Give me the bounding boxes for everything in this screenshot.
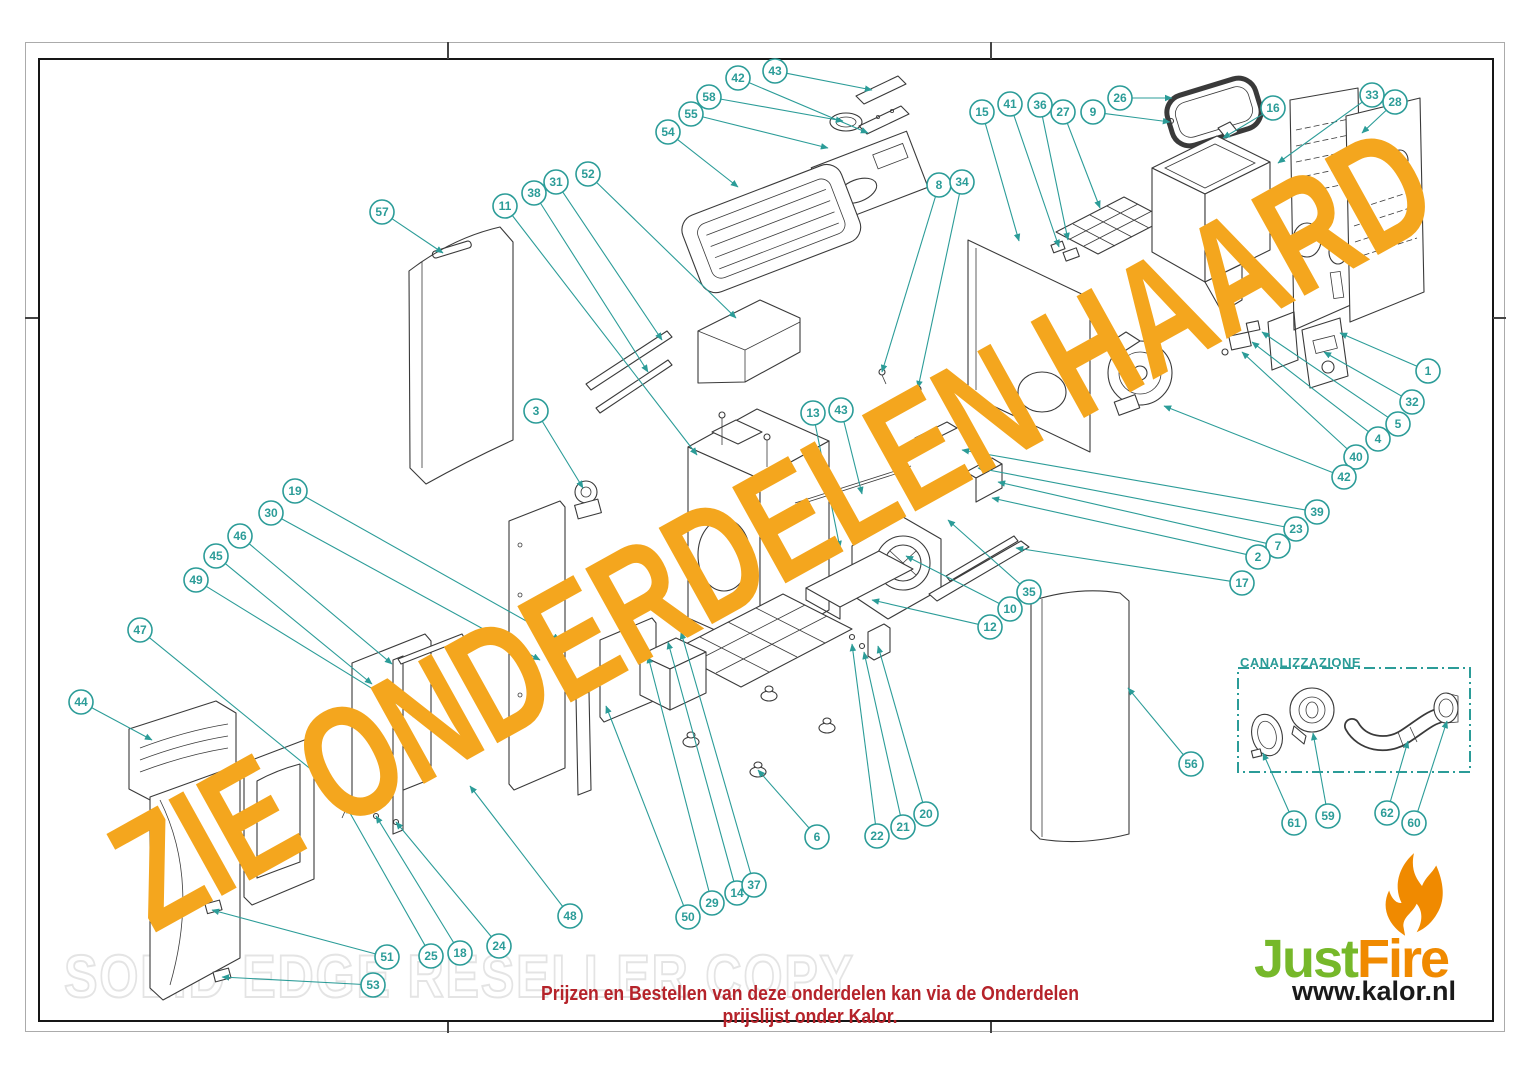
callout-22: 22: [852, 644, 889, 848]
svg-text:54: 54: [661, 125, 675, 139]
callout-58: 58: [697, 85, 843, 121]
svg-text:11: 11: [499, 199, 512, 213]
svg-text:48: 48: [563, 909, 577, 923]
callout-56: 56: [1128, 688, 1203, 776]
svg-text:49: 49: [189, 573, 203, 587]
svg-text:26: 26: [1113, 91, 1127, 105]
svg-text:25: 25: [424, 949, 438, 963]
callout-48: 48: [470, 786, 582, 928]
svg-text:51: 51: [380, 950, 394, 964]
svg-text:62: 62: [1380, 806, 1394, 820]
svg-text:20: 20: [919, 807, 933, 821]
duct-parts: [1247, 688, 1458, 759]
callout-59: 59: [1313, 733, 1340, 828]
callout-55: 55: [679, 102, 828, 148]
callout-41: 41: [998, 92, 1059, 247]
svg-text:28: 28: [1388, 95, 1402, 109]
svg-text:18: 18: [453, 946, 467, 960]
svg-text:36: 36: [1033, 98, 1047, 112]
svg-text:56: 56: [1184, 757, 1198, 771]
callout-6: 6: [758, 770, 829, 849]
svg-text:41: 41: [1003, 97, 1017, 111]
svg-text:9: 9: [1090, 105, 1097, 119]
svg-text:59: 59: [1321, 809, 1335, 823]
callout-62: 62: [1375, 741, 1408, 825]
svg-text:22: 22: [870, 829, 884, 843]
svg-text:4: 4: [1375, 432, 1382, 446]
svg-text:55: 55: [684, 107, 698, 121]
justfire-logo: JustFire www.kalor.nl: [1254, 848, 1484, 1008]
svg-text:2: 2: [1255, 550, 1262, 564]
svg-text:24: 24: [492, 939, 506, 953]
callout-11: 11: [493, 194, 697, 455]
svg-text:39: 39: [1310, 505, 1324, 519]
svg-text:40: 40: [1349, 450, 1363, 464]
exploded-parts-page: SOLID EDGE RESELLER COPY: [0, 0, 1531, 1085]
svg-text:38: 38: [527, 186, 541, 200]
svg-text:61: 61: [1287, 816, 1301, 830]
svg-text:32: 32: [1405, 395, 1419, 409]
flame-icon: [1366, 848, 1446, 940]
svg-text:3: 3: [533, 404, 540, 418]
callout-61: 61: [1263, 753, 1306, 835]
callout-20: 20: [878, 646, 938, 826]
svg-text:29: 29: [705, 896, 719, 910]
svg-text:46: 46: [233, 529, 247, 543]
svg-text:53: 53: [366, 978, 380, 992]
callout-35: 35: [948, 520, 1041, 604]
callout-15: 15: [970, 100, 1019, 241]
svg-text:52: 52: [581, 167, 595, 181]
callout-24: 24: [396, 822, 511, 958]
svg-text:23: 23: [1289, 522, 1303, 536]
svg-text:31: 31: [549, 175, 563, 189]
callout-17: 17: [1016, 548, 1254, 595]
svg-text:8: 8: [936, 178, 943, 192]
svg-text:10: 10: [1003, 602, 1017, 616]
footer-note: Prijzen en Bestellen van deze onderdelen…: [520, 983, 1101, 1029]
svg-text:21: 21: [896, 820, 910, 834]
svg-text:30: 30: [264, 506, 278, 520]
svg-text:16: 16: [1266, 101, 1280, 115]
svg-text:6: 6: [814, 830, 821, 844]
svg-text:5: 5: [1395, 417, 1402, 431]
svg-text:60: 60: [1407, 816, 1421, 830]
svg-text:43: 43: [768, 64, 782, 78]
callout-54: 54: [656, 120, 738, 187]
svg-text:42: 42: [731, 71, 745, 85]
callout-53: 53: [222, 973, 385, 997]
callout-40: 40: [1242, 352, 1368, 469]
callout-2: 2: [992, 498, 1270, 569]
callout-21: 21: [864, 652, 915, 839]
callout-42: 42: [726, 66, 868, 133]
svg-text:1: 1: [1425, 364, 1432, 378]
callout-3: 3: [524, 399, 583, 488]
svg-text:58: 58: [702, 90, 716, 104]
callout-26: 26: [1108, 86, 1172, 110]
callout-46: 46: [228, 524, 392, 664]
svg-text:44: 44: [74, 695, 88, 709]
svg-text:17: 17: [1235, 576, 1249, 590]
svg-text:7: 7: [1275, 539, 1282, 553]
callout-31: 31: [544, 170, 662, 340]
svg-text:35: 35: [1022, 585, 1036, 599]
callout-43: 43: [763, 59, 872, 90]
svg-text:37: 37: [747, 878, 761, 892]
svg-text:42: 42: [1337, 470, 1351, 484]
callout-57: 57: [370, 200, 443, 253]
svg-text:45: 45: [209, 549, 223, 563]
callout-42: 42: [1164, 406, 1356, 489]
svg-text:15: 15: [975, 105, 989, 119]
svg-text:57: 57: [375, 205, 389, 219]
svg-text:12: 12: [983, 620, 997, 634]
svg-text:27: 27: [1056, 105, 1070, 119]
callout-38: 38: [522, 181, 648, 372]
svg-text:50: 50: [681, 910, 695, 924]
svg-text:19: 19: [288, 484, 302, 498]
svg-text:47: 47: [133, 623, 147, 637]
website-url: www.kalor.nl: [1292, 976, 1456, 1007]
canalizzazione-label: CANALIZZAZIONE: [1240, 655, 1361, 670]
callout-1: 1: [1340, 333, 1440, 383]
svg-text:34: 34: [955, 175, 969, 189]
